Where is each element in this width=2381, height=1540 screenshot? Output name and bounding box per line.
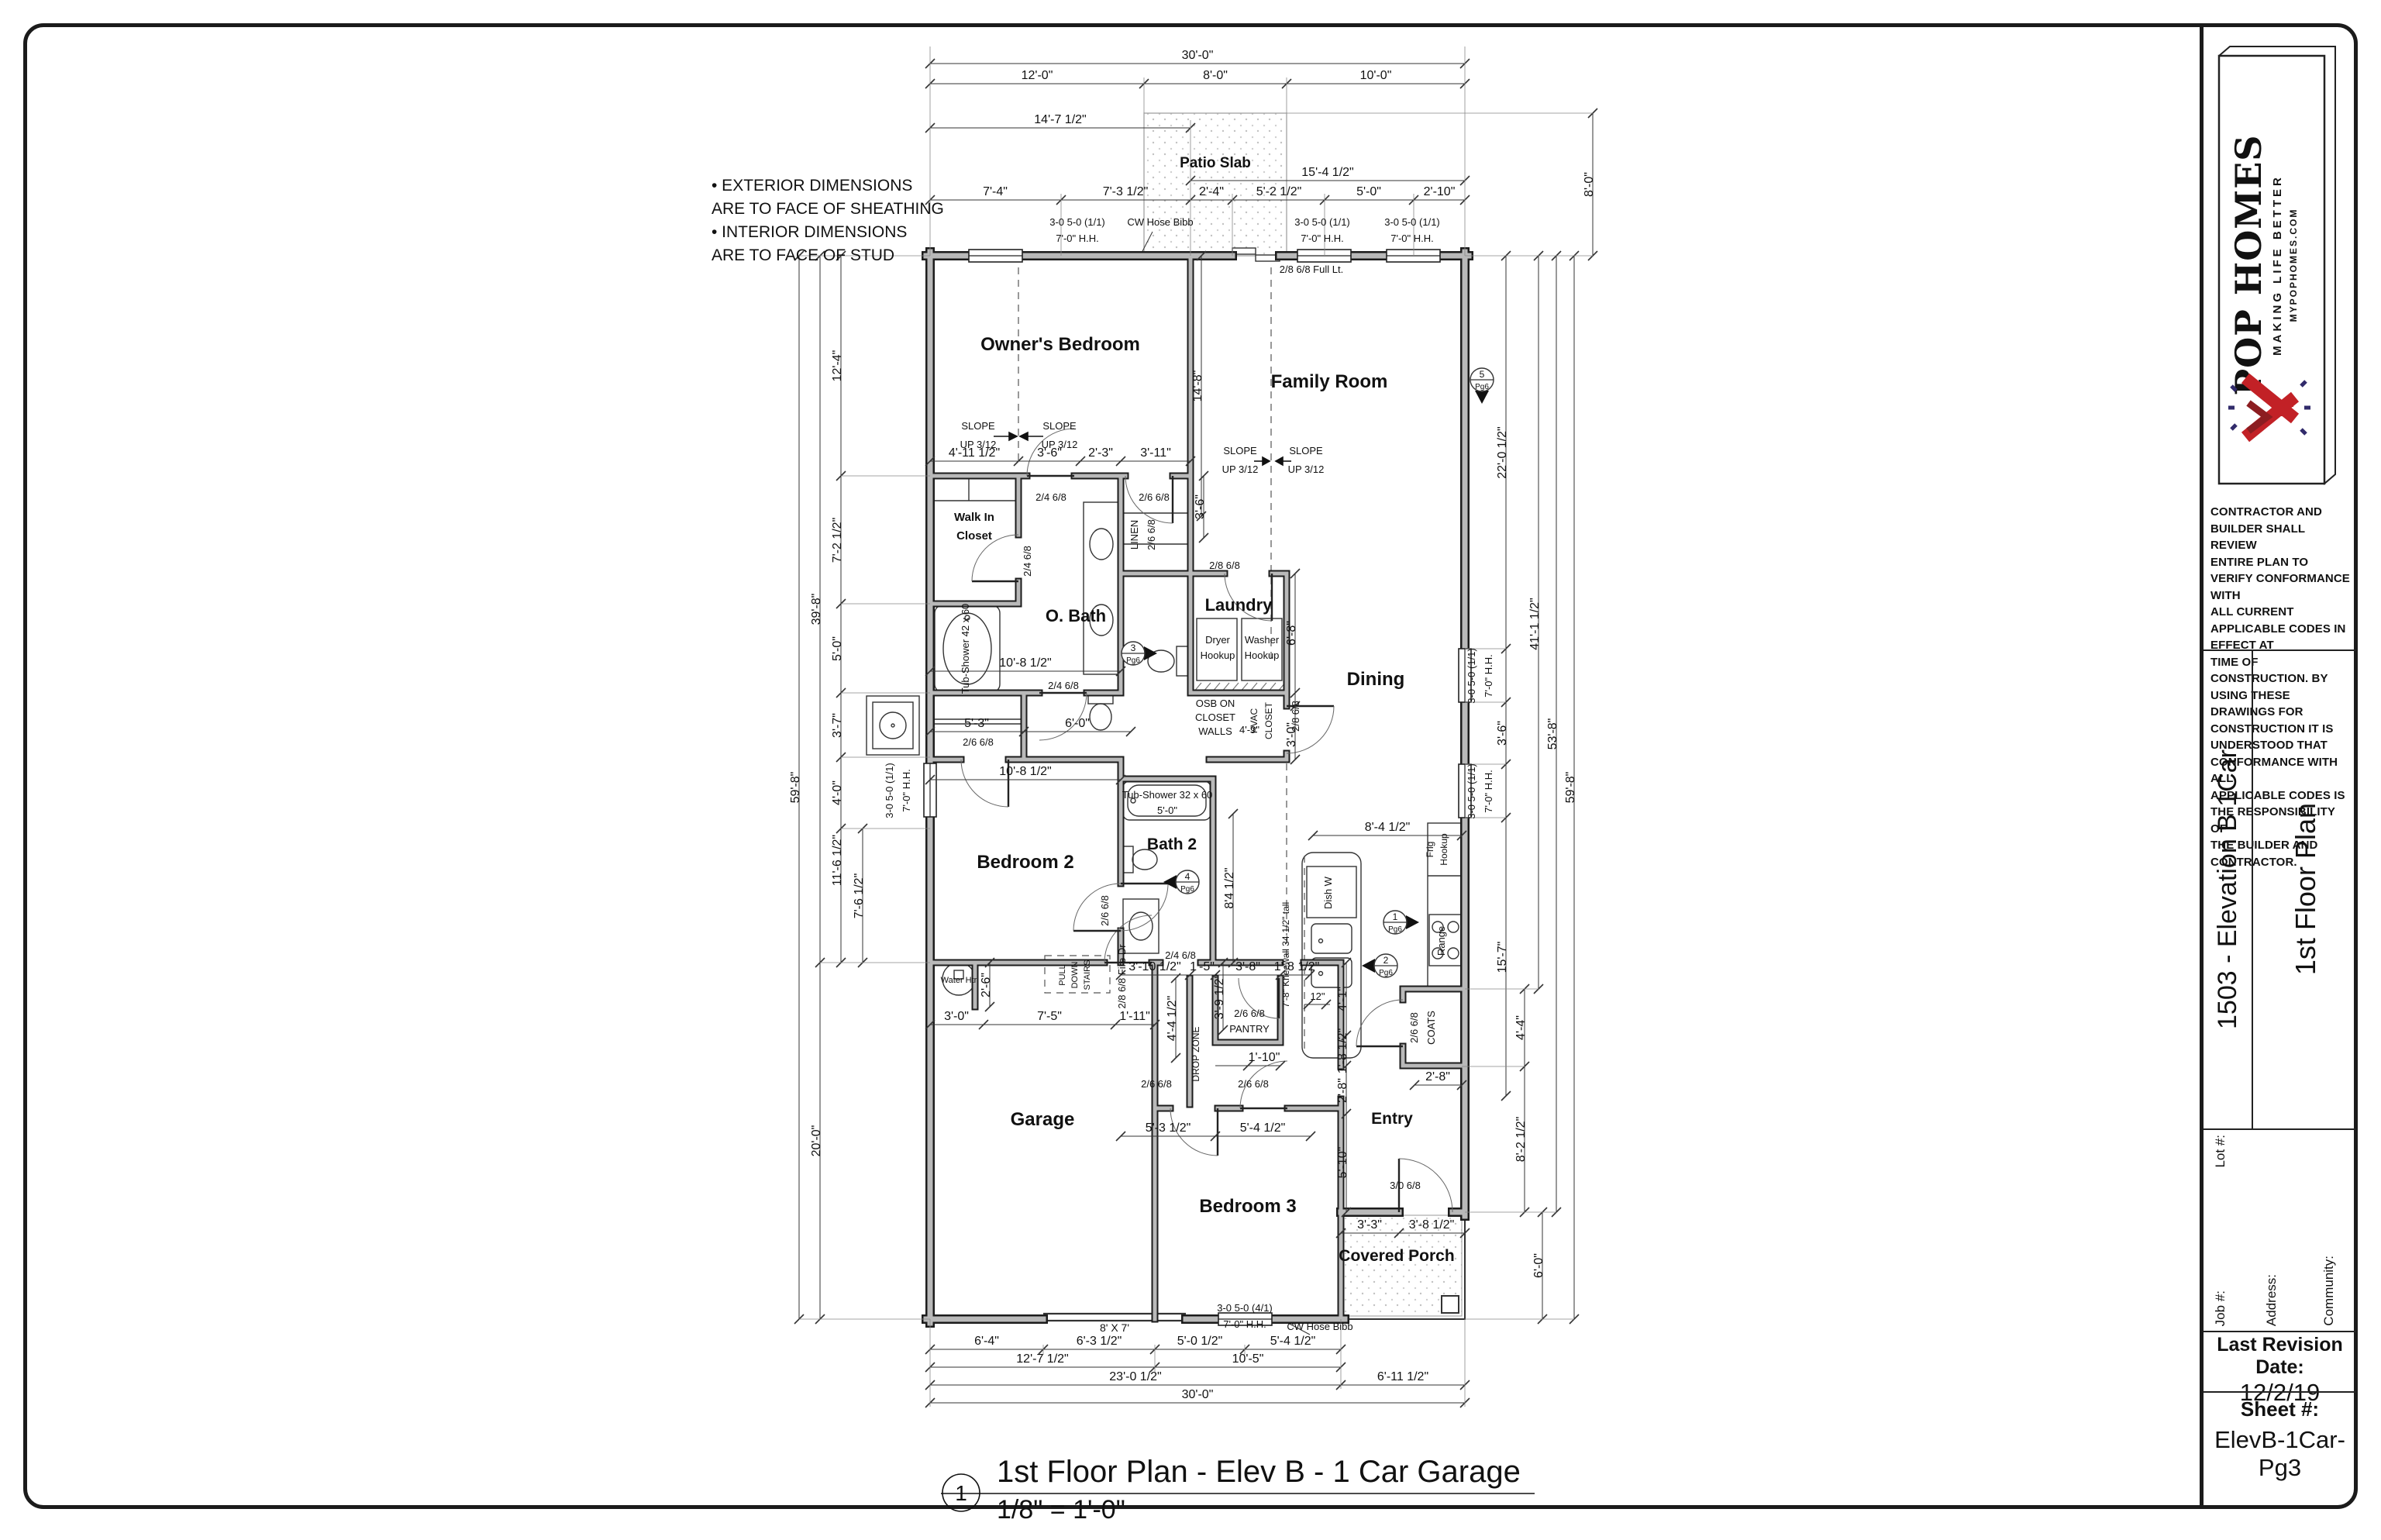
marker-number: 2 bbox=[1383, 955, 1389, 966]
plan-label: 15'-7" bbox=[1496, 942, 1509, 973]
plan-label: 8'-0" bbox=[1203, 69, 1228, 82]
room-label: Covered Porch bbox=[1339, 1247, 1454, 1265]
note-text: ARE TO FACE OF SHEATHING bbox=[712, 200, 944, 218]
plan-label: 39'-8" bbox=[810, 594, 823, 625]
plan-label: 1'-11" bbox=[1119, 1010, 1150, 1023]
plan-label: DROP ZONE bbox=[1190, 1026, 1201, 1081]
plan-label: 11'-6 1/2" bbox=[831, 835, 844, 886]
plan-label: 3'-10 1/2" bbox=[1128, 960, 1180, 973]
plan-label: 3/0 6/8 bbox=[1390, 1180, 1421, 1191]
sheet-no: ElevB-1Car-Pg3 bbox=[2204, 1426, 2356, 1482]
community-label: Community: bbox=[2321, 1256, 2337, 1326]
plan-label: 12'-0" bbox=[1022, 69, 1053, 82]
plan-label: SLOPE bbox=[1289, 445, 1323, 456]
plan-label: OSB ON bbox=[1196, 698, 1235, 709]
plan-label: 3-0 5-0 (1/1) bbox=[1466, 648, 1477, 704]
marker-page: Pg6 bbox=[1475, 383, 1489, 391]
plan-label: SLOPE bbox=[961, 420, 995, 432]
plan-label: 3'-6" bbox=[1037, 446, 1062, 460]
revision-cell: Last Revision Date: 12/2/19 bbox=[2204, 1331, 2356, 1391]
detail-number: 1 bbox=[955, 1481, 967, 1505]
plan-label: 59'-8" bbox=[789, 772, 802, 804]
plan-label: 22'-0 1/2" bbox=[1496, 426, 1509, 478]
plan-title-group: 1 1st Floor Plan - Elev B - 1 Car Garage… bbox=[941, 1455, 1535, 1519]
plan-label: 2/6 6/8 bbox=[1408, 1012, 1420, 1043]
elevation-marker: 2Pg6 bbox=[1362, 954, 1397, 977]
marker-number: 3 bbox=[1131, 643, 1136, 653]
plan-label: UP 3/12 bbox=[1288, 463, 1325, 475]
plan-label: WALLS bbox=[1198, 725, 1232, 737]
plan-label: Washer bbox=[1245, 634, 1280, 646]
plan-label: 2/4 6/8 bbox=[1165, 949, 1196, 961]
plan-label: 7'-0" H.H. bbox=[1056, 233, 1099, 244]
plan-label: 2'-3" bbox=[1088, 446, 1113, 460]
plan-label: 8'-0" bbox=[1583, 172, 1596, 197]
plan-label: Hookup bbox=[1245, 649, 1280, 661]
plan-label: UP 3/12 bbox=[1222, 463, 1259, 475]
plan-label: 2/4 6/8 bbox=[1035, 491, 1066, 503]
plan-label: 2/6 6/8 bbox=[1146, 519, 1157, 550]
sheet-id-cell: 1503 - Elevation B 1Car 1st Floor Plan bbox=[2204, 649, 2356, 1128]
room-label: Garage bbox=[1011, 1109, 1075, 1130]
plan-title: 1st Floor Plan - Elev B - 1 Car Garage bbox=[997, 1455, 1521, 1489]
logo-name: POP HOMES bbox=[2228, 135, 2269, 396]
marker-number: 1 bbox=[1393, 911, 1398, 922]
plan-label: 7'-0" H.H. bbox=[1390, 233, 1434, 244]
plan-label: Hookup bbox=[1201, 649, 1235, 661]
plan-label: Dryer bbox=[1205, 634, 1230, 646]
plan-label: 3-0 5-0 (1/1) bbox=[1049, 216, 1105, 228]
plan-label: Hookup bbox=[1439, 833, 1449, 866]
plan-label: 2/6 6/8 bbox=[1139, 491, 1170, 503]
disclaimer-line: ENTIRE PLAN TO VERIFY CONFORMANCE WITH bbox=[2210, 554, 2352, 605]
toilet-bath2 bbox=[1123, 846, 1133, 873]
plan-label: 6'-3 1/2" bbox=[1077, 1335, 1122, 1348]
plan-label: 2'-10" bbox=[1424, 185, 1456, 198]
plan-label: 2'-6" bbox=[980, 973, 993, 997]
plan-label: 4'-1" bbox=[1336, 987, 1349, 1011]
plan-label: 3'-8 1/2" bbox=[1409, 1218, 1455, 1232]
plan-label: 2/8 6/8 Full Lt. bbox=[1280, 264, 1343, 275]
plan-label: 5'-3 1/2" bbox=[1146, 1121, 1191, 1135]
plan-label: COATS bbox=[1425, 1011, 1437, 1045]
door-swing bbox=[1121, 884, 1168, 931]
plan-label: 3-0 5-0 (1/1) bbox=[1294, 216, 1350, 228]
plan-label: 3'-9 1/2" bbox=[1213, 974, 1226, 1020]
disclaimer-line: ALL CURRENT APPLICABLE CODES IN EFFECT A… bbox=[2210, 604, 2352, 654]
plan-label: PULL bbox=[1058, 964, 1067, 986]
plan-label: 3-0 5-0 (1/1) bbox=[1384, 216, 1440, 228]
room-label: Bedroom 3 bbox=[1199, 1196, 1296, 1217]
revision-label: Last Revision Date: bbox=[2204, 1334, 2356, 1379]
plan-label: Tub-Shower 32 x 60 bbox=[1122, 789, 1213, 801]
plan-label: 5'-0" bbox=[1356, 185, 1381, 198]
plan-number: 1503 - Elevation B 1Car bbox=[2213, 749, 2243, 1029]
plan-label: 12'-7 1/2" bbox=[1016, 1352, 1068, 1366]
plan-label: 8'-4 1/2" bbox=[1365, 821, 1411, 834]
plan-label: 3-0 5-0 (1/1) bbox=[1466, 763, 1477, 819]
room-label: Laundry bbox=[1205, 595, 1273, 615]
plan-label: Dish W bbox=[1322, 876, 1334, 909]
plan-label: Frig bbox=[1425, 842, 1435, 858]
plan-label: 23'-0 1/2" bbox=[1109, 1370, 1161, 1383]
plan-label: 5'-3" bbox=[964, 717, 989, 730]
plan-label: 4'-0" bbox=[831, 780, 844, 805]
plan-scale: 1/8" = 1'-0" bbox=[997, 1495, 1125, 1519]
plan-label: Water Htr bbox=[941, 976, 977, 985]
sink-bowl bbox=[1311, 924, 1352, 953]
plan-label: 3'-0" bbox=[944, 1010, 969, 1023]
plan-label: 5'-2 1/2" bbox=[1256, 185, 1302, 198]
plan-label: 30'-0" bbox=[1182, 49, 1214, 62]
plan-label: PANTRY bbox=[1229, 1023, 1270, 1035]
plan-label: 1'-8 1/2" bbox=[1336, 1028, 1349, 1074]
room-label: O. Bath bbox=[1046, 606, 1106, 625]
plan-label: 7'-6 1/2" bbox=[853, 873, 866, 919]
plan-label: 3'-8" bbox=[1235, 960, 1260, 973]
plan-label: 3'-3" bbox=[1357, 1218, 1382, 1232]
plan-label: SLOPE bbox=[1223, 445, 1257, 456]
marker-page: Pg6 bbox=[1379, 969, 1393, 977]
room-label: Walk In bbox=[954, 511, 994, 524]
plan-label: SLOPE bbox=[1042, 420, 1077, 432]
plan-label: 2/6 6/8 bbox=[1099, 895, 1111, 926]
plan-label: 2'-4" bbox=[1199, 185, 1224, 198]
plan-label: 3'-7" bbox=[831, 713, 844, 738]
plan-label: 1'-8 1/2" bbox=[1274, 960, 1320, 973]
plan-label: Tub-Shower 42 x 60 bbox=[960, 604, 971, 694]
plan-label: 7'-3 1/2" bbox=[1103, 185, 1149, 198]
plan-label: 10'-0" bbox=[1360, 69, 1392, 82]
sheet-number-cell: Sheet #: ElevB-1Car-Pg3 bbox=[2204, 1391, 2356, 1507]
plan-label: 7'-5" bbox=[1037, 1010, 1062, 1023]
plan-label: 7'-0" H.H. bbox=[901, 769, 912, 812]
plan-label: 8' X 7' bbox=[1100, 1321, 1129, 1334]
door-swing bbox=[1356, 1000, 1403, 1046]
plan-label: 3-0 5-0 (4/1) bbox=[1217, 1302, 1273, 1314]
room-label: Patio Slab bbox=[1180, 155, 1251, 171]
plan-label: 30'-0" bbox=[1182, 1388, 1214, 1401]
plan-label: 10'-5" bbox=[1232, 1352, 1264, 1366]
elevation-marker: 3Pg6 bbox=[1122, 642, 1157, 665]
plan-label: 10'-8 1/2" bbox=[999, 656, 1051, 670]
plan-label: CLOSET bbox=[1195, 711, 1235, 723]
plan-label: 4'-11 1/2" bbox=[949, 446, 1000, 460]
plan-label: DOWN bbox=[1070, 962, 1080, 989]
plan-label: 3-0 5-0 (1/1) bbox=[884, 763, 895, 818]
logo-tagline: MAKING LIFE BETTER bbox=[2271, 174, 2284, 356]
title-block: POP HOMES MAKING LIFE BETTER MYPOPHOMES.… bbox=[2200, 23, 2356, 1509]
sheet-no-label: Sheet #: bbox=[2204, 1397, 2356, 1421]
patio-slab bbox=[1144, 113, 1287, 256]
plan-label: 4'-4" bbox=[1514, 1015, 1528, 1040]
plan-label: 12" bbox=[1310, 990, 1325, 1002]
plan-label: LINEN bbox=[1128, 520, 1140, 550]
plan-label: 7'-0" H.H. bbox=[1223, 1318, 1266, 1330]
plan-label: 5'-4 1/2" bbox=[1270, 1335, 1316, 1348]
plan-label: 2/4 6/8 bbox=[1022, 546, 1033, 577]
room-label: Family Room bbox=[1271, 371, 1388, 392]
plan-label: 3'-6" bbox=[1194, 494, 1207, 519]
elevation-marker: 4Pg6 bbox=[1163, 870, 1199, 894]
plan-label: STAIRS bbox=[1083, 960, 1092, 990]
note-text: ARE TO FACE OF STUD bbox=[712, 246, 894, 264]
plan-label: Range bbox=[1435, 926, 1447, 956]
plan-label: 2/8 6/8 Fire Dr bbox=[1116, 944, 1128, 1009]
plan-label: 14'-7 1/2" bbox=[1034, 113, 1086, 126]
plan-label: 8'4 1/2" bbox=[1223, 867, 1236, 908]
logo-box: POP HOMES MAKING LIFE BETTER MYPOPHOMES.… bbox=[2216, 43, 2338, 496]
plan-label: 7'-0" H.H. bbox=[1301, 233, 1344, 244]
ac-pad bbox=[867, 696, 919, 755]
plan-label: 6'-0" bbox=[1065, 717, 1090, 730]
plan-label: 5'-4 1/2" bbox=[1240, 1121, 1286, 1135]
floor-plan: 1 1st Floor Plan - Elev B - 1 Car Garage… bbox=[698, 23, 1620, 1519]
room-label: Bath 2 bbox=[1147, 835, 1197, 853]
room-label: Entry bbox=[1371, 1110, 1413, 1128]
fixtures-layer bbox=[867, 232, 1465, 1335]
porch-post bbox=[1442, 1296, 1459, 1313]
marker-number: 4 bbox=[1185, 871, 1190, 882]
plan-label: CW Hose Bibb bbox=[1127, 216, 1193, 228]
plan-label: 53'-8" bbox=[1546, 718, 1559, 750]
plan-label: 4'-4 1/2" bbox=[1166, 996, 1179, 1042]
plan-label: 20'-0" bbox=[810, 1125, 823, 1157]
plan-label: 7'-0" H.H. bbox=[1483, 654, 1494, 698]
marker-page: Pg6 bbox=[1180, 885, 1194, 894]
plan-label: 7'-2 1/2" bbox=[831, 518, 844, 563]
plan-label: 5'-0" bbox=[831, 636, 844, 661]
plan-label: 6'-11 1/2" bbox=[1377, 1370, 1428, 1383]
plan-label: 4'-9" bbox=[1239, 724, 1259, 736]
disclaimer-line: CONTRACTOR AND BUILDER SHALL REVIEW bbox=[2210, 504, 2352, 554]
marker-page: Pg6 bbox=[1126, 656, 1140, 665]
room-label: Bedroom 2 bbox=[977, 852, 1073, 873]
plan-label: 2/4 6/8 bbox=[1048, 680, 1079, 691]
plan-label: 3'-0" bbox=[1285, 722, 1298, 747]
plan-label: 3'-11" bbox=[1140, 446, 1171, 460]
job-label: Job #: bbox=[2213, 1290, 2228, 1326]
room-label: Dining bbox=[1347, 669, 1405, 690]
plan-label: 1'-10" bbox=[1249, 1051, 1280, 1064]
logo-website: MYPOPHOMES.COM bbox=[2288, 208, 2299, 322]
plan-label: CW Hose Bibb bbox=[1287, 1321, 1352, 1332]
plan-label: 2/6 6/8 bbox=[963, 736, 994, 748]
plan-label: 2/6 6/8 bbox=[1141, 1078, 1172, 1090]
plan-label: 2/8 6/8 bbox=[1209, 560, 1240, 571]
lot-cell: Lot #: Job #: Address: Community: bbox=[2204, 1128, 2356, 1331]
plan-label: 5'-0 1/2" bbox=[1177, 1335, 1223, 1348]
plan-label: 6'-0" bbox=[1532, 1253, 1545, 1278]
plan-label: 2'-8" bbox=[1425, 1070, 1450, 1084]
marker-number: 5 bbox=[1480, 369, 1485, 380]
note-text: • EXTERIOR DIMENSIONS bbox=[712, 177, 912, 195]
marker-page: Pg6 bbox=[1388, 925, 1402, 934]
plan-label: 10'-8 1/2" bbox=[999, 765, 1051, 778]
plan-label: 6'-8" bbox=[1285, 621, 1298, 646]
plan-label: 2/6 6/8 bbox=[1234, 1008, 1265, 1019]
room-label: Owner's Bedroom bbox=[980, 334, 1140, 355]
room-label: Closet bbox=[956, 529, 992, 543]
plan-label: 15'-4 1/2" bbox=[1301, 166, 1353, 179]
plan-label: 5'-0" bbox=[1157, 804, 1177, 816]
plan-label: 14'-8" bbox=[1191, 370, 1204, 402]
plan-label: 2'-8" bbox=[1336, 1078, 1349, 1103]
plan-label: 1'-5" bbox=[1190, 960, 1215, 973]
sheet-title: 1st Floor Plan bbox=[2290, 803, 2322, 975]
plan-label: 7'-8" Kneewall 34-1/2" tall bbox=[1280, 902, 1291, 1008]
elevation-marker: 1Pg6 bbox=[1383, 911, 1419, 934]
lot-label: Lot #: bbox=[2213, 1135, 2228, 1168]
plan-label: 59'-8" bbox=[1564, 772, 1577, 804]
plan-label: CLOSET bbox=[1263, 701, 1274, 739]
elevation-marker: 5Pg6 bbox=[1470, 368, 1494, 404]
doors-windows-layer bbox=[924, 250, 1471, 1325]
door-swing bbox=[1073, 884, 1121, 931]
plan-label: 7'-0" H.H. bbox=[1483, 770, 1494, 813]
drawing-sheet: 1 1st Floor Plan - Elev B - 1 Car Garage… bbox=[0, 0, 2381, 1540]
plan-label: 3'-6" bbox=[1496, 721, 1509, 746]
plan-label: 41'-1 1/2" bbox=[1528, 598, 1542, 649]
note-text: • INTERIOR DIMENSIONS bbox=[712, 223, 907, 241]
plan-label: 5'-10" bbox=[1336, 1147, 1349, 1179]
plan-label: 7'-4" bbox=[983, 185, 1008, 198]
plan-label: 8'-2 1/2" bbox=[1514, 1117, 1528, 1163]
plan-label: 6'-4" bbox=[974, 1335, 999, 1348]
address-label: Address: bbox=[2264, 1274, 2279, 1326]
plan-label: 2/6 6/8 bbox=[1238, 1078, 1269, 1090]
plan-label: 12'-4" bbox=[831, 350, 844, 382]
